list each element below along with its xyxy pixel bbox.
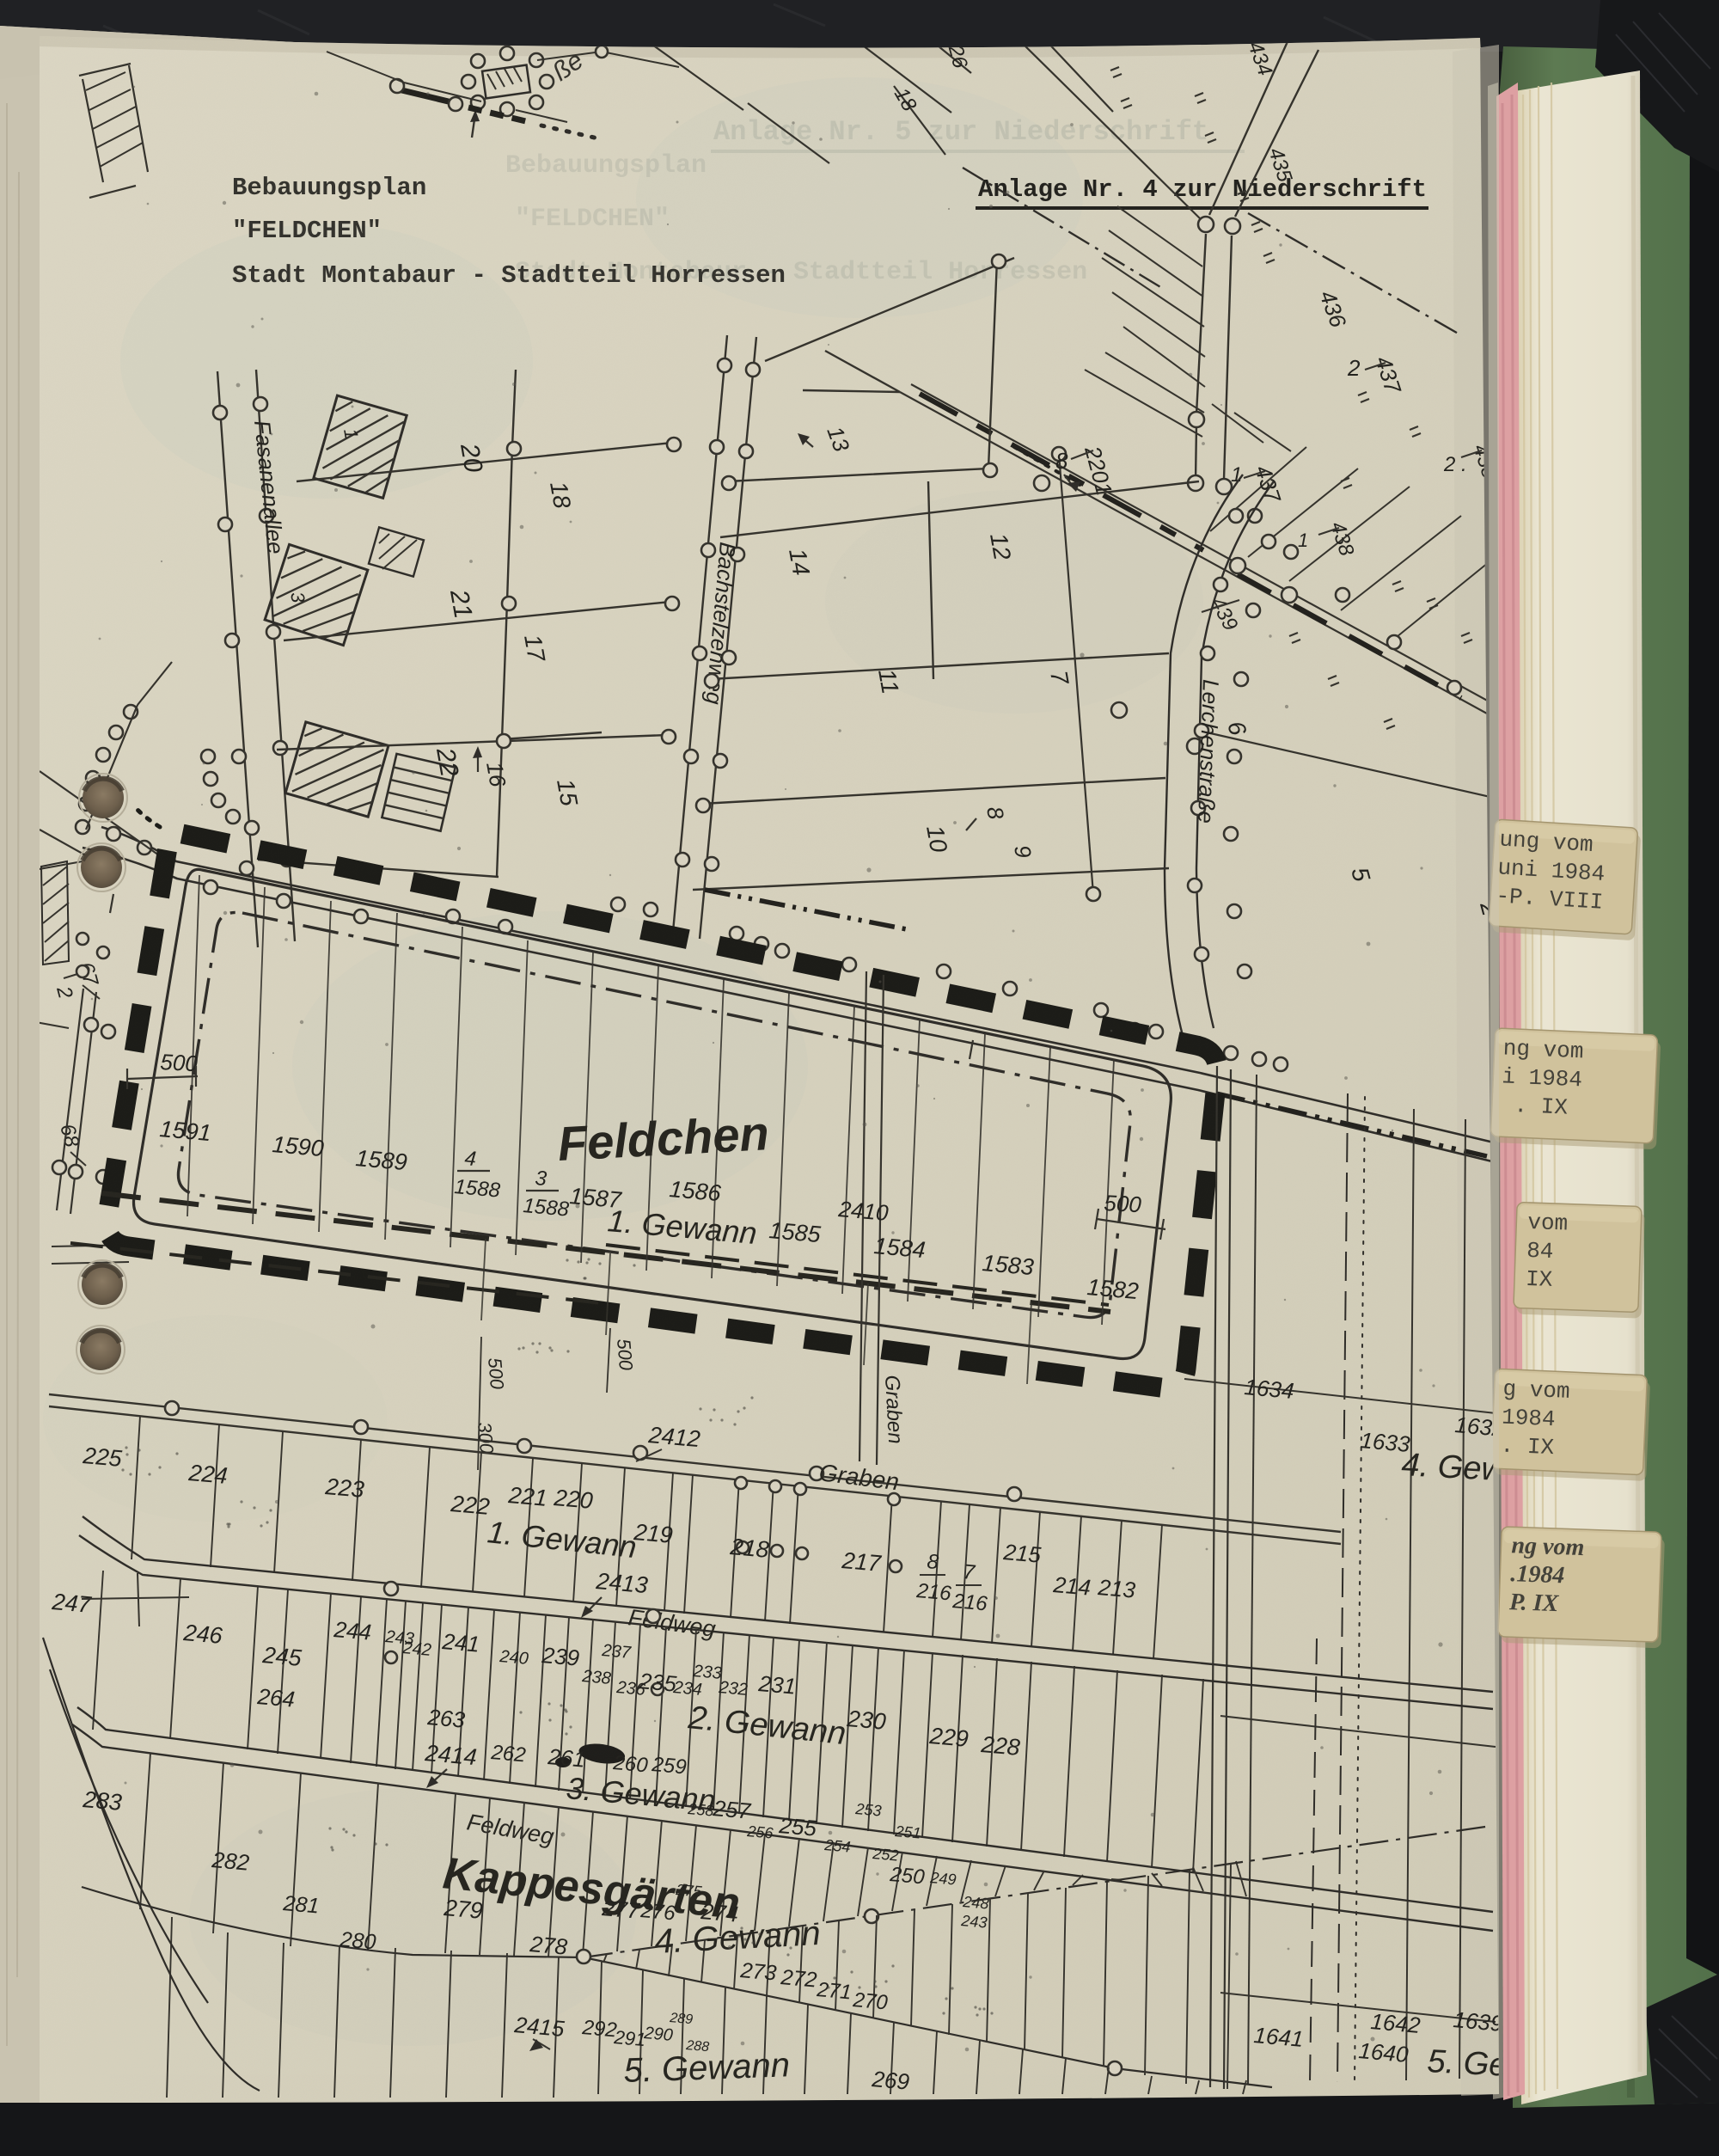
svg-text:vom: vom bbox=[1527, 1210, 1569, 1237]
svg-text:1984: 1984 bbox=[1502, 1405, 1557, 1433]
svg-text:.1984: .1984 bbox=[1510, 1560, 1565, 1589]
svg-text:. IX: . IX bbox=[1500, 1092, 1569, 1120]
svg-text:P. IX: P. IX bbox=[1508, 1589, 1560, 1617]
svg-text:IX: IX bbox=[1526, 1266, 1554, 1293]
svg-text:. IX: . IX bbox=[1500, 1433, 1555, 1461]
svg-text:ng vom: ng vom bbox=[1502, 1035, 1584, 1064]
svg-text:84: 84 bbox=[1526, 1238, 1554, 1265]
svg-text:i 1984: i 1984 bbox=[1502, 1063, 1583, 1093]
svg-text:ng vom: ng vom bbox=[1511, 1532, 1585, 1561]
svg-text:g vom: g vom bbox=[1502, 1376, 1570, 1405]
